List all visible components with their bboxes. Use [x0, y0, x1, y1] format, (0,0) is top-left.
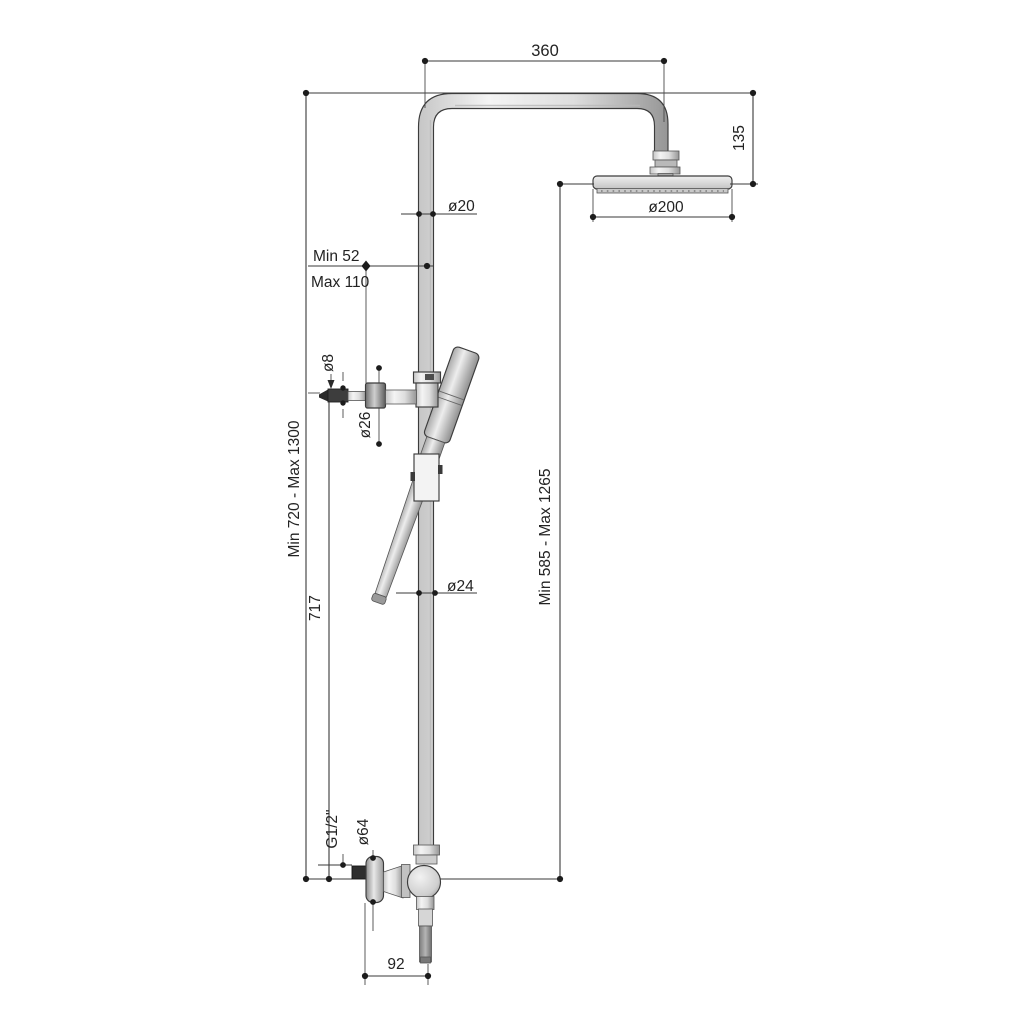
shower-column-drawing: 360 135 ø20 ø200 Min 52 Max 110 ø8 ø26 M… — [0, 0, 1024, 1024]
dim-head-drop-label: 135 — [731, 125, 748, 151]
dim-bracket-height-label: 717 — [307, 595, 324, 621]
shower-hose — [420, 926, 432, 962]
lower-union-collar — [414, 845, 440, 864]
riser-top-collar — [414, 372, 441, 407]
wall-flange — [366, 857, 384, 903]
dim-head-diameter-label: ø200 — [648, 199, 684, 216]
flange-cone — [384, 866, 404, 899]
dim-inlet-thread-label: G1/2" — [324, 809, 341, 848]
bracket-rod — [348, 392, 366, 401]
wall-pin — [328, 389, 348, 402]
inlet-thread — [352, 866, 366, 879]
hand-shower-slider — [411, 454, 443, 501]
dim-bracket-knob-diameter-label: ø26 — [357, 412, 374, 439]
dim-overall-height-label: Min 720 - Max 1300 — [286, 420, 303, 557]
mixer-knob — [408, 866, 441, 899]
dim-flange-diameter-label: ø64 — [355, 818, 372, 845]
head-connector-nut — [650, 151, 680, 178]
wall-pin-tip — [319, 390, 328, 402]
pin-leader-arrow — [328, 380, 335, 389]
outlet-connector — [417, 897, 435, 910]
dim-outlet-offset-label: 92 — [387, 956, 404, 973]
dim-bracket-max-label: Max 110 — [311, 274, 370, 291]
dimension-lines — [306, 61, 758, 985]
technical-drawing-page: 360 135 ø20 ø200 Min 52 Max 110 ø8 ø26 M… — [0, 0, 1024, 1024]
bracket-knob — [366, 383, 386, 408]
bracket-range-arrow — [362, 261, 371, 272]
dim-wall-pin-diameter-label: ø8 — [320, 354, 337, 372]
rain-shower-head — [593, 176, 732, 193]
shower-fixture — [319, 94, 732, 964]
dim-riser-diameter-bottom-label: ø24 — [447, 578, 474, 595]
dim-head-height-label: Min 585 - Max 1265 — [537, 469, 554, 606]
dim-riser-diameter-top-label: ø20 — [448, 198, 475, 215]
dim-bracket-min-label: Min 52 — [313, 248, 360, 265]
bracket-arm-tube — [386, 390, 417, 404]
wall-bracket-arm — [319, 383, 417, 408]
dim-arm-length-label: 360 — [531, 42, 559, 60]
